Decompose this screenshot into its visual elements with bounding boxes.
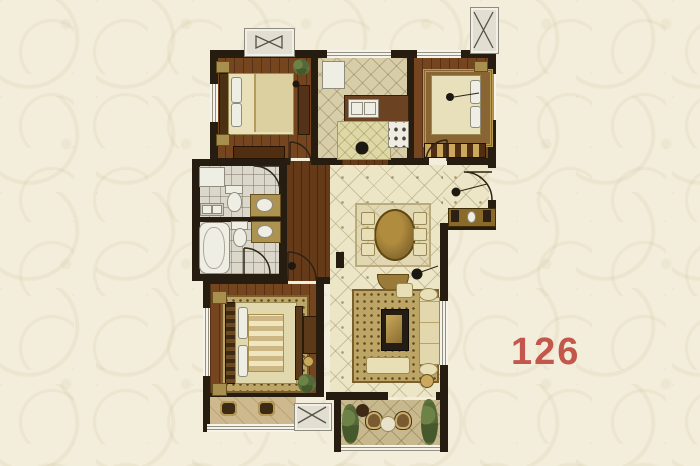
bay-chair — [258, 401, 275, 416]
floor-plan-image: 126 — [0, 0, 700, 466]
sink — [212, 205, 222, 214]
balcony-pot — [356, 404, 369, 417]
plant — [293, 59, 310, 75]
console-ornament — [483, 210, 491, 222]
pillow — [238, 307, 248, 339]
pillow — [231, 103, 242, 127]
bench — [366, 357, 410, 374]
pillow — [470, 80, 481, 104]
dresser — [233, 146, 285, 159]
wardrobe — [424, 143, 486, 158]
duct-shaft-bottom-left — [294, 403, 332, 431]
wall — [203, 277, 288, 284]
pillow — [231, 77, 242, 103]
floor-plan — [0, 0, 700, 466]
toilet-bowl — [233, 228, 247, 247]
bed-blanket — [254, 74, 293, 132]
dining-chair — [361, 243, 375, 256]
balcony-table — [380, 416, 396, 432]
fridge — [322, 61, 345, 89]
wall — [316, 277, 330, 284]
pillow — [470, 106, 481, 128]
unit-area-label: 126 — [511, 331, 580, 374]
balcony-railing — [341, 445, 440, 451]
kitchen-sink-basin — [351, 102, 363, 115]
side-table — [420, 374, 434, 388]
sofa-armrest — [419, 288, 438, 301]
console-ornament — [451, 210, 459, 222]
bed-throw — [248, 314, 284, 372]
bay-chair — [220, 401, 237, 416]
bathtub-basin — [203, 227, 225, 269]
pillow — [238, 345, 248, 377]
duct-shaft-top-left — [244, 28, 295, 57]
nightstand — [212, 291, 227, 304]
vanity-sink — [257, 225, 273, 238]
kitchen-island-mat — [337, 121, 391, 160]
coffee-table-top — [386, 315, 402, 343]
wardrobe — [298, 85, 310, 135]
plant — [298, 374, 316, 393]
console-ornament — [467, 211, 476, 223]
wall — [440, 398, 448, 452]
sofa — [419, 297, 440, 365]
kitchen-sink-basin — [364, 102, 376, 115]
bay-window — [207, 424, 297, 432]
wall — [413, 158, 429, 165]
wall — [388, 158, 413, 165]
dining-chair — [413, 228, 427, 241]
nightstand — [216, 61, 230, 73]
sink — [202, 205, 212, 214]
window — [417, 50, 461, 58]
plant — [421, 399, 438, 445]
shower-tray — [199, 167, 225, 187]
dressing-table — [303, 316, 317, 354]
window — [440, 301, 448, 365]
window — [210, 84, 218, 122]
wall — [334, 398, 341, 452]
duct-shaft-top-right — [470, 7, 499, 54]
wall — [279, 159, 287, 281]
vanity-sink — [256, 198, 273, 212]
dining-chair — [413, 243, 427, 256]
dining-chair — [413, 212, 427, 225]
dining-chair — [361, 228, 375, 241]
dining-chair — [361, 212, 375, 225]
nightstand — [474, 61, 488, 72]
stool — [303, 356, 314, 367]
balcony-chair — [394, 411, 412, 430]
window — [327, 50, 391, 58]
nightstand — [216, 134, 230, 146]
window — [203, 308, 210, 376]
nightstand — [212, 383, 227, 396]
wall — [311, 50, 318, 165]
wall — [440, 223, 448, 301]
dining-table — [374, 209, 416, 261]
stove — [388, 121, 409, 148]
toilet-bowl — [227, 192, 242, 212]
wall — [210, 158, 290, 165]
armchair — [396, 283, 413, 298]
hallway-floor — [285, 161, 330, 281]
wall — [336, 252, 344, 268]
bed-footboard — [295, 306, 303, 380]
wall — [316, 284, 324, 397]
